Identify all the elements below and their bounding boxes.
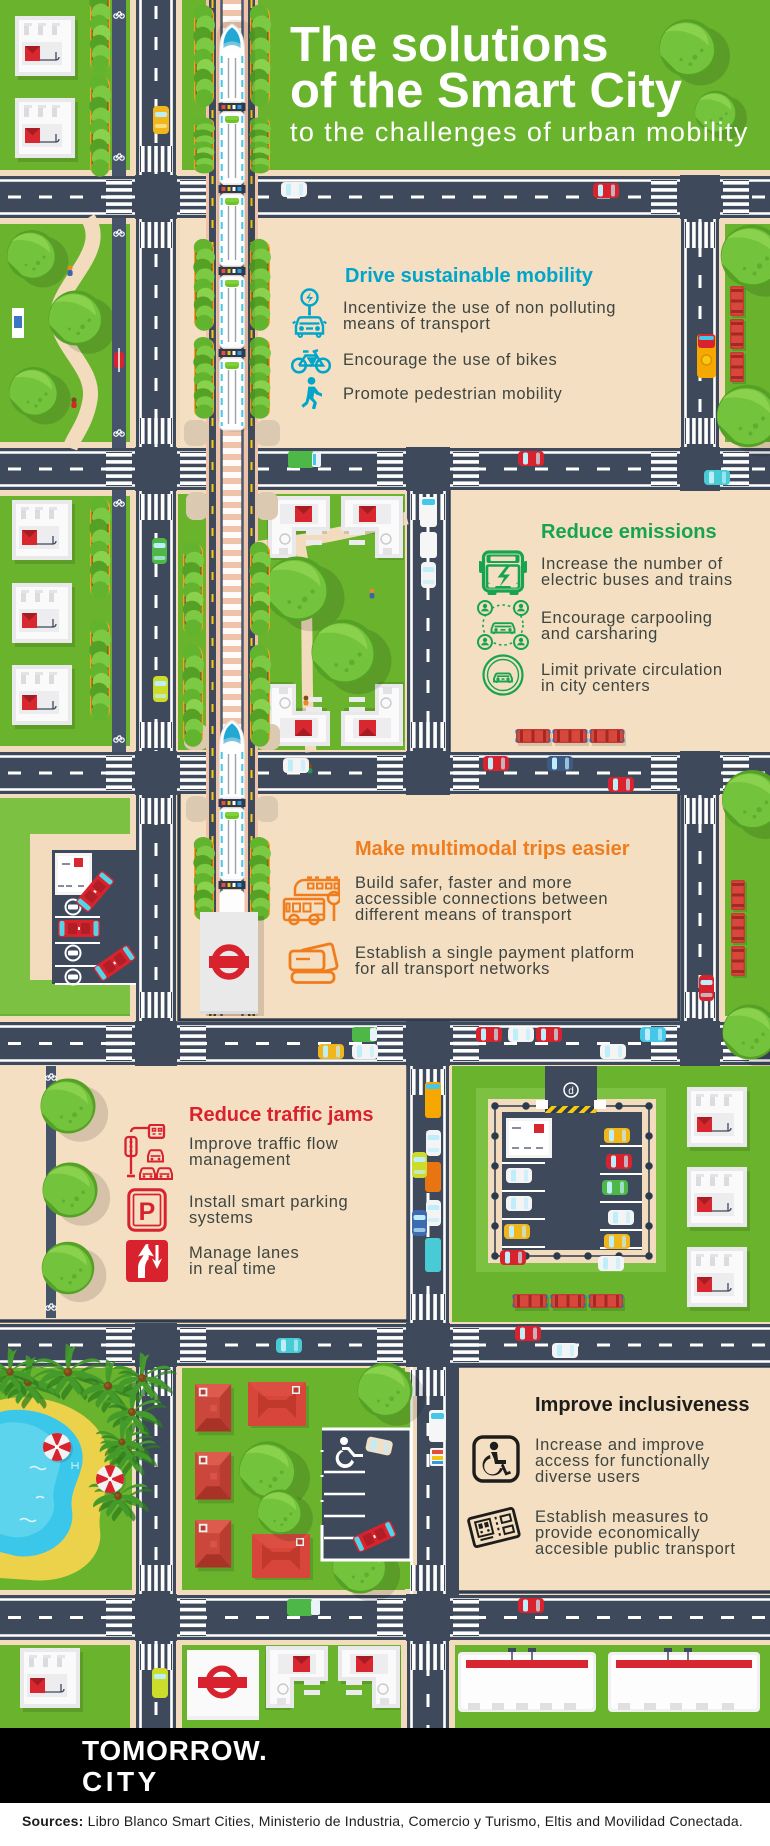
svg-text:P: P [139,1198,156,1226]
svg-text:d: d [568,1086,574,1097]
